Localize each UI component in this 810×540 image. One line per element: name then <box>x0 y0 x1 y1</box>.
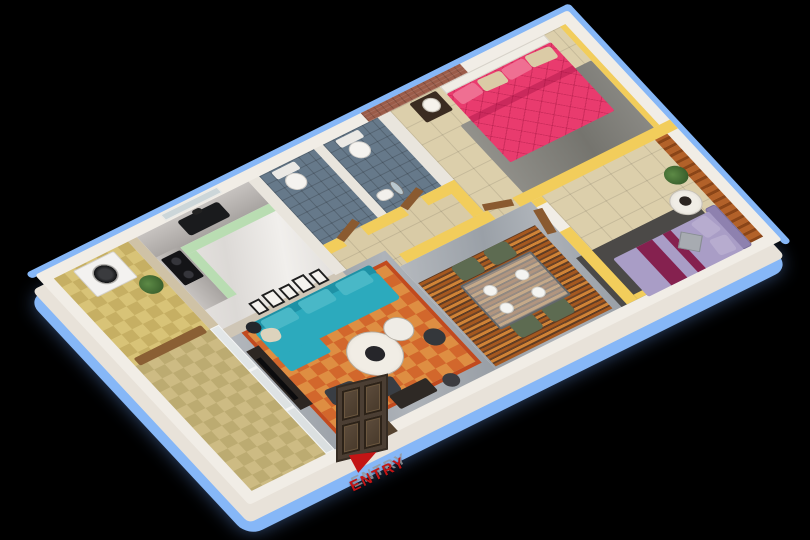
entry-door-panel <box>364 381 382 415</box>
entry-door-panel <box>342 386 360 420</box>
floor-plan-render: ENTRY <box>0 0 810 540</box>
